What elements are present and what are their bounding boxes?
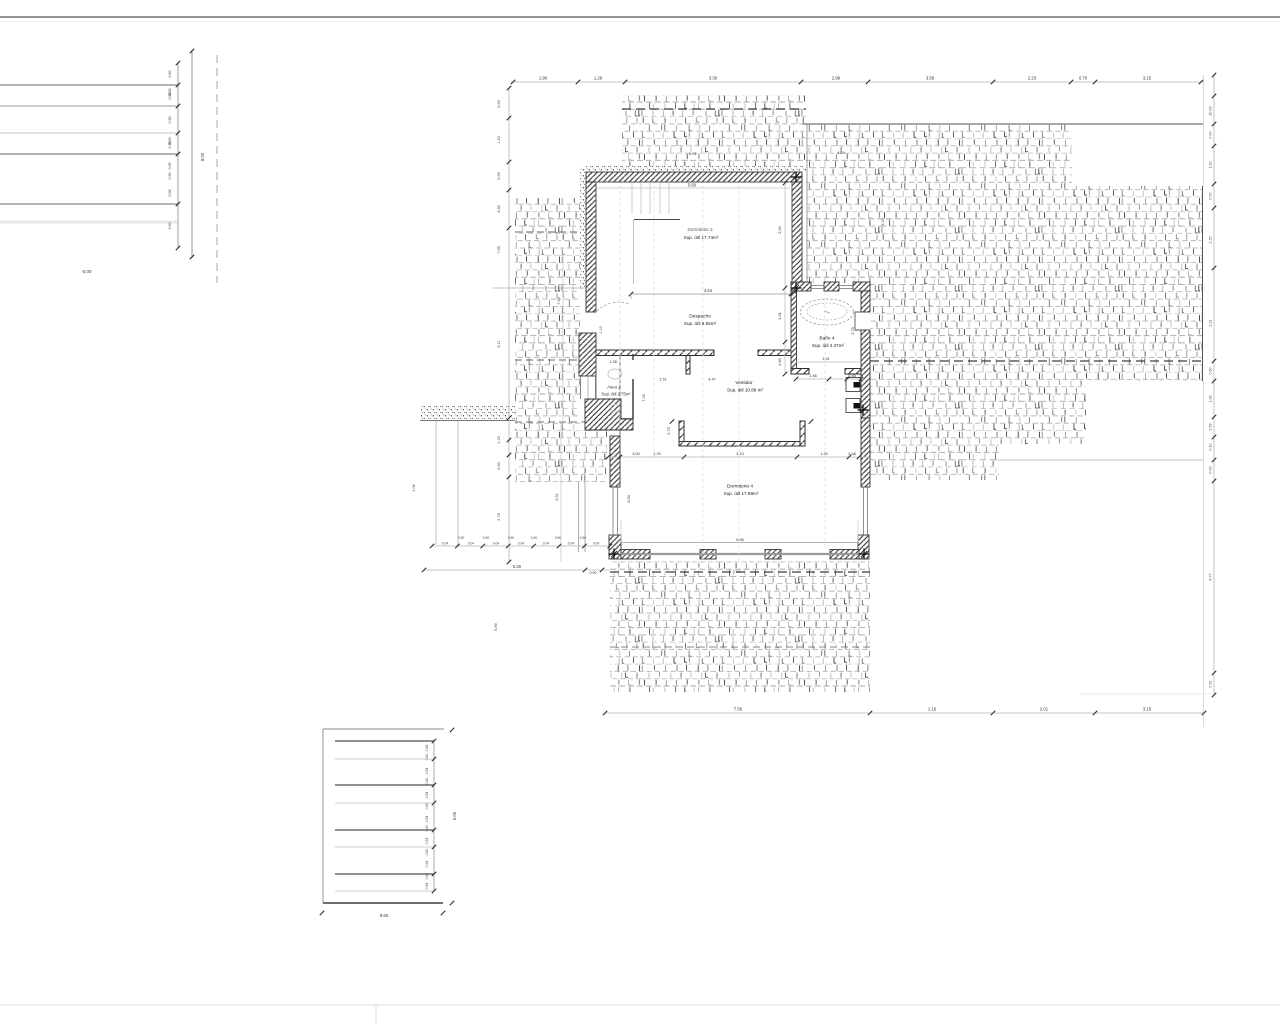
svg-text:2.94: 2.94 (777, 225, 782, 233)
svg-text:Sup. útil 9.55m²: Sup. útil 9.55m² (684, 321, 717, 326)
svg-text:0.60: 0.60 (425, 849, 429, 856)
svg-text:3.58: 3.58 (926, 76, 935, 81)
svg-text:Dormitorio 4: Dormitorio 4 (727, 484, 753, 490)
svg-text:0.00: 0.00 (1209, 131, 1213, 138)
svg-text:0.04: 0.04 (543, 542, 550, 546)
svg-text:0.90: 0.90 (508, 536, 515, 540)
svg-text:0.60: 0.60 (1209, 367, 1213, 374)
svg-text:5.60: 5.60 (688, 183, 697, 188)
svg-text:9.50: 9.50 (380, 913, 389, 918)
svg-text:2.53: 2.53 (1209, 423, 1213, 430)
svg-text:1.40: 1.40 (497, 136, 501, 143)
svg-text:6.77: 6.77 (1209, 573, 1213, 580)
svg-text:0.60: 0.60 (497, 462, 501, 469)
svg-text:1.56: 1.56 (809, 373, 817, 378)
svg-text:0.54: 0.54 (425, 792, 429, 799)
svg-text:2.23: 2.23 (1028, 76, 1037, 81)
svg-text:Despacho: Despacho (689, 314, 711, 320)
svg-text:0.54: 0.54 (425, 816, 429, 823)
svg-text:0.00: 0.00 (1209, 192, 1213, 199)
svg-text:3.00: 3.00 (626, 494, 631, 502)
svg-text:0.08: 0.08 (168, 190, 172, 197)
svg-text:4.64: 4.64 (704, 288, 713, 293)
svg-text:6.96: 6.96 (736, 537, 744, 542)
svg-text:1.33: 1.33 (1209, 395, 1213, 402)
svg-text:4.47: 4.47 (708, 377, 716, 382)
svg-text:Sup. útil 17.74m²: Sup. útil 17.74m² (684, 235, 719, 240)
svg-text:0.04: 0.04 (568, 542, 575, 546)
svg-text:0.00: 0.00 (1209, 466, 1213, 473)
svg-text:0.51: 0.51 (1209, 680, 1213, 687)
svg-text:0.90: 0.90 (531, 536, 538, 540)
svg-text:6.00: 6.00 (83, 269, 92, 274)
svg-text:Vestidor: Vestidor (735, 380, 753, 386)
svg-text:3.60: 3.60 (497, 205, 501, 212)
svg-text:Sup. útil 10.88 m²: Sup. útil 10.88 m² (727, 388, 763, 393)
svg-text:Sup. útil 2.75m²: Sup. útil 2.75m² (601, 392, 631, 397)
svg-text:0.10: 0.10 (1209, 443, 1213, 450)
svg-text:0.60: 0.60 (777, 357, 782, 365)
svg-text:8.00: 8.00 (200, 152, 205, 161)
svg-text:3.15: 3.15 (1143, 707, 1152, 712)
svg-text:3.30: 3.30 (709, 76, 718, 81)
svg-text:3.40: 3.40 (880, 217, 885, 225)
svg-text:0.90: 0.90 (458, 536, 465, 540)
svg-text:0.60: 0.60 (425, 825, 429, 832)
svg-text:0.54: 0.54 (425, 745, 429, 752)
svg-text:Sup. útil 17.88m²: Sup. útil 17.88m² (724, 491, 759, 496)
svg-text:7.56: 7.56 (734, 707, 743, 712)
svg-text:0.60: 0.60 (497, 100, 501, 107)
svg-text:6.91: 6.91 (689, 151, 698, 156)
svg-text:1.16: 1.16 (928, 707, 937, 712)
svg-text:2.48: 2.48 (848, 451, 856, 456)
svg-text:3.15: 3.15 (1143, 76, 1152, 81)
svg-text:0.50: 0.50 (497, 172, 501, 179)
svg-text:1.29: 1.29 (594, 76, 603, 81)
svg-text:Sup. útil 4.37m²: Sup. útil 4.37m² (812, 343, 845, 348)
svg-text:0.54: 0.54 (425, 883, 429, 890)
svg-text:1.20: 1.20 (1209, 161, 1213, 168)
svg-text:1.38: 1.38 (609, 359, 617, 364)
svg-text:3.00: 3.00 (632, 451, 640, 456)
svg-text:0.54: 0.54 (425, 838, 429, 845)
svg-text:7.94: 7.94 (557, 297, 561, 304)
svg-text:1.20: 1.20 (653, 451, 661, 456)
svg-text:4.06: 4.06 (412, 484, 416, 491)
svg-text:Aseo 2: Aseo 2 (607, 385, 621, 390)
svg-text:0.04: 0.04 (493, 542, 500, 546)
svg-text:4.84: 4.84 (837, 150, 846, 155)
svg-text:0.04: 0.04 (442, 542, 449, 546)
svg-text:Baño 4: Baño 4 (819, 336, 835, 342)
svg-text:2.78: 2.78 (497, 513, 501, 520)
svg-text:20.03: 20.03 (1209, 106, 1213, 115)
svg-text:1.20: 1.20 (820, 451, 828, 456)
svg-text:0.70: 0.70 (1079, 76, 1088, 81)
svg-text:5.11: 5.11 (497, 340, 501, 347)
svg-text:5.30: 5.30 (513, 564, 522, 569)
svg-text:0.60: 0.60 (425, 778, 429, 785)
svg-text:0.54: 0.54 (425, 768, 429, 775)
svg-text:5.89: 5.89 (494, 623, 498, 630)
svg-text:0.60: 0.60 (425, 803, 429, 810)
svg-text:2.73: 2.73 (666, 427, 671, 435)
svg-text:1.91: 1.91 (822, 356, 830, 361)
svg-text:0.04: 0.04 (468, 542, 475, 546)
svg-text:0.90: 0.90 (483, 536, 490, 540)
svg-text:3.00: 3.00 (168, 223, 172, 230)
svg-text:1.91: 1.91 (777, 312, 782, 320)
svg-text:1.10: 1.10 (599, 326, 603, 333)
svg-text:0.90: 0.90 (555, 536, 562, 540)
svg-text:0.88: 0.88 (168, 93, 172, 100)
svg-text:2.25: 2.25 (1209, 236, 1213, 243)
svg-text:0.60: 0.60 (168, 71, 172, 78)
svg-text:1.20: 1.20 (497, 436, 501, 443)
svg-text:1.51: 1.51 (659, 377, 667, 382)
svg-text:7.05: 7.05 (497, 246, 501, 253)
svg-text:7.45: 7.45 (641, 394, 646, 402)
svg-text:0.54: 0.54 (425, 861, 429, 868)
svg-text:7.56: 7.56 (733, 570, 740, 574)
svg-text:0.90: 0.90 (590, 571, 597, 575)
svg-text:0.90: 0.90 (168, 173, 172, 180)
svg-text:Dormitorio 3: Dormitorio 3 (687, 227, 712, 232)
svg-text:3.51: 3.51 (555, 493, 559, 500)
svg-text:0.60: 0.60 (425, 873, 429, 880)
svg-text:0.45: 0.45 (848, 373, 856, 378)
svg-text:3.10: 3.10 (736, 451, 744, 456)
svg-text:0.60: 0.60 (425, 754, 429, 761)
svg-text:2.21: 2.21 (1209, 319, 1213, 326)
svg-text:0.09: 0.09 (168, 163, 172, 170)
svg-text:0.90: 0.90 (168, 117, 172, 124)
svg-text:2.79: 2.79 (850, 327, 855, 335)
svg-text:1.90: 1.90 (539, 76, 548, 81)
svg-text:0.04: 0.04 (518, 542, 525, 546)
svg-text:2.01: 2.01 (1040, 707, 1049, 712)
svg-text:2.96: 2.96 (832, 76, 841, 81)
svg-text:0.90: 0.90 (168, 142, 172, 149)
svg-text:0.90: 0.90 (580, 536, 587, 540)
svg-text:0.04: 0.04 (593, 542, 600, 546)
svg-text:5.06: 5.06 (452, 811, 457, 820)
